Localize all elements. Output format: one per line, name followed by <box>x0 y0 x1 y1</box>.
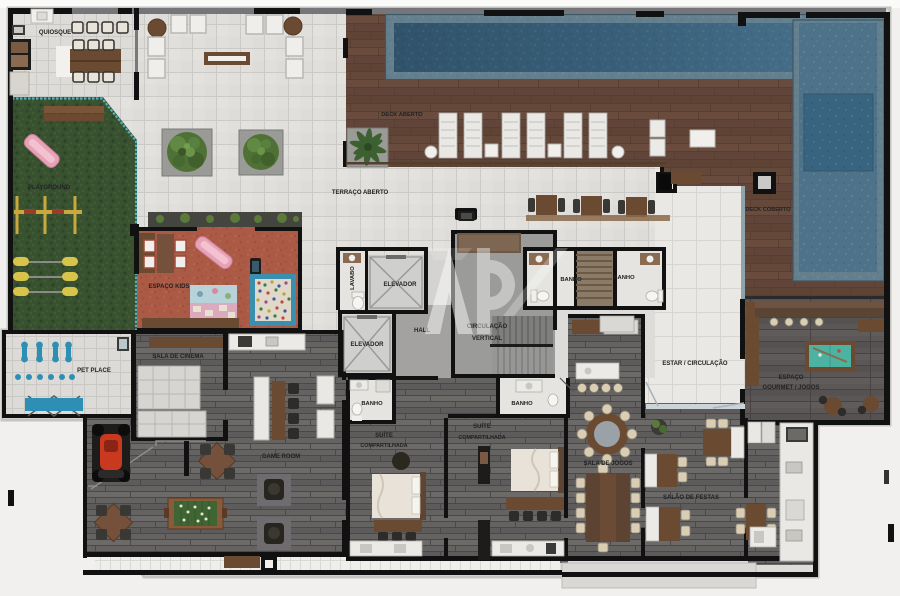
svg-text:ELEVADOR: ELEVADOR <box>351 342 385 348</box>
svg-text:SUÍTE: SUÍTE <box>473 422 491 430</box>
svg-text:PET PLACE: PET PLACE <box>77 368 111 374</box>
svg-text:QUIOSQUE: QUIOSQUE <box>39 30 71 36</box>
svg-text:BANHO: BANHO <box>511 401 533 407</box>
svg-text:ELEVADOR: ELEVADOR <box>384 282 418 288</box>
svg-text:ESPAÇO KIDS: ESPAÇO KIDS <box>149 284 190 290</box>
svg-text:COMPARTILHADA: COMPARTILHADA <box>458 435 505 441</box>
svg-text:SUÍTE: SUÍTE <box>375 431 393 439</box>
svg-text:GAME ROOM: GAME ROOM <box>262 454 300 460</box>
svg-text:BANHO: BANHO <box>361 401 383 407</box>
svg-text:SALÃO DE FESTAS: SALÃO DE FESTAS <box>663 494 719 501</box>
svg-text:SALA DE JOGOS: SALA DE JOGOS <box>583 461 632 467</box>
svg-text:PLAYGROUND: PLAYGROUND <box>28 185 71 191</box>
svg-text:TERRAÇO ABERTO: TERRAÇO ABERTO <box>332 190 389 196</box>
svg-text:COMPARTILHADA: COMPARTILHADA <box>360 443 407 449</box>
svg-text:ESTAR / CIRCULAÇÃO: ESTAR / CIRCULAÇÃO <box>662 360 728 367</box>
svg-text:DECK ABERTO: DECK ABERTO <box>381 112 423 118</box>
svg-text:GOURMET / JOGOS: GOURMET / JOGOS <box>762 385 819 391</box>
svg-text:SALA DE CINEMA: SALA DE CINEMA <box>152 354 204 360</box>
svg-text:VERTICAL: VERTICAL <box>472 336 502 342</box>
svg-text:BANHO: BANHO <box>560 277 582 283</box>
svg-text:LAVABO: LAVABO <box>350 266 356 290</box>
svg-text:BANHO: BANHO <box>613 275 635 281</box>
svg-text:ESPAÇO: ESPAÇO <box>779 375 804 381</box>
svg-text:DECK COBERTO: DECK COBERTO <box>745 207 791 213</box>
